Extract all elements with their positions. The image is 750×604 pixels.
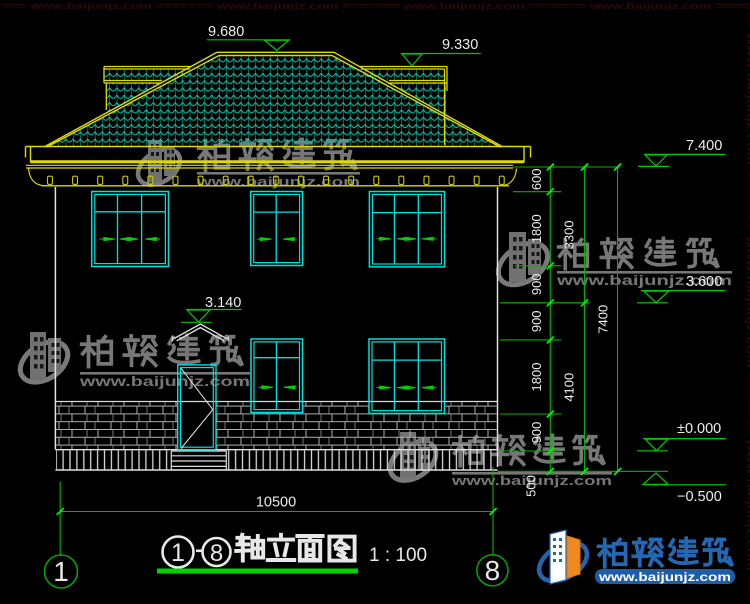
svg-text:900: 900 <box>529 422 544 444</box>
svg-text:900: 900 <box>529 310 544 332</box>
svg-text:9.680: 9.680 <box>208 24 244 40</box>
svg-text:3.600: 3.600 <box>686 274 722 290</box>
svg-text:8: 8 <box>485 555 501 586</box>
svg-text:10500: 10500 <box>256 495 296 511</box>
svg-text:=== www.baijunjz.com ======= w: === www.baijunjz.com ======= www.baijunj… <box>744 2 750 603</box>
svg-text:3.140: 3.140 <box>205 295 241 311</box>
svg-text:1800: 1800 <box>529 363 544 392</box>
svg-text:500: 500 <box>524 475 539 497</box>
svg-text:1 : 100: 1 : 100 <box>369 545 427 566</box>
svg-text:9.330: 9.330 <box>442 37 478 53</box>
svg-text:900: 900 <box>529 273 544 295</box>
svg-text:600: 600 <box>529 168 544 190</box>
svg-text:4100: 4100 <box>562 373 577 402</box>
svg-text:=== www.baijunjz.com ======= w: === www.baijunjz.com ======= www.baijunj… <box>2 1 749 12</box>
svg-text:7400: 7400 <box>596 305 611 334</box>
svg-text:7.400: 7.400 <box>686 138 722 154</box>
svg-text:−0.500: −0.500 <box>677 489 722 505</box>
svg-text:±0.000: ±0.000 <box>677 421 721 437</box>
svg-text:www.baijunjz.com: www.baijunjz.com <box>598 572 731 584</box>
svg-text:1800: 1800 <box>529 214 544 243</box>
svg-text:1: 1 <box>53 556 69 587</box>
svg-text:3300: 3300 <box>562 220 577 249</box>
svg-text:www.baijunjz.com: www.baijunjz.com <box>79 373 250 389</box>
svg-text:8: 8 <box>210 540 223 567</box>
svg-text:1: 1 <box>171 539 185 567</box>
